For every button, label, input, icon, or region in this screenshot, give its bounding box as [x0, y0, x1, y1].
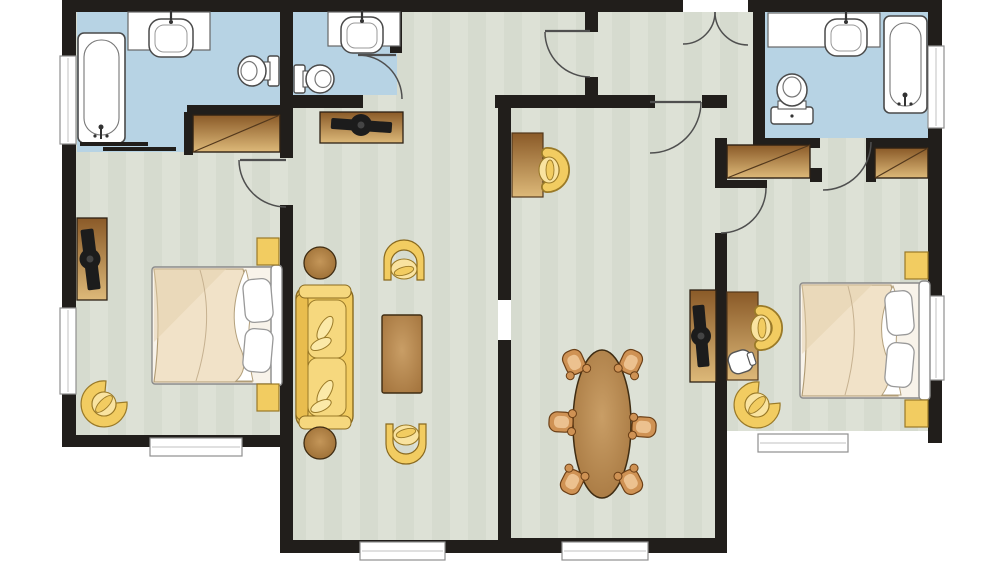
sink-2: [328, 10, 400, 53]
nightstand-1a: [257, 238, 279, 265]
armchair-living-1: [384, 240, 424, 280]
closet-3: [875, 148, 928, 178]
tv-unit-living: [320, 112, 403, 143]
bed-1: [152, 265, 282, 386]
coffee-table: [382, 315, 422, 393]
side-table-2: [304, 427, 336, 459]
armchair-living-2: [386, 424, 426, 464]
floor-plan-svg: [0, 0, 1000, 563]
tv-unit-dining: [690, 290, 716, 382]
sink-1: [128, 10, 210, 57]
toilet-2: [294, 65, 334, 93]
nightstand-1b: [257, 384, 279, 411]
bathtub-2: [884, 16, 927, 113]
nightstand-2a: [905, 252, 928, 279]
floor-plan-page: Two-bedroom suite floor plan: [0, 0, 1000, 563]
side-table-1: [304, 247, 336, 279]
closet-2: [727, 145, 810, 178]
sofa: [296, 285, 353, 429]
toilet-1: [238, 56, 279, 86]
nightstand-2b: [905, 400, 928, 427]
bathtub-1: [78, 33, 125, 143]
tv-unit-bedroom-1: [77, 218, 107, 300]
desk-dining: [512, 133, 543, 197]
bed-2: [800, 281, 930, 400]
closet-1: [193, 115, 280, 152]
